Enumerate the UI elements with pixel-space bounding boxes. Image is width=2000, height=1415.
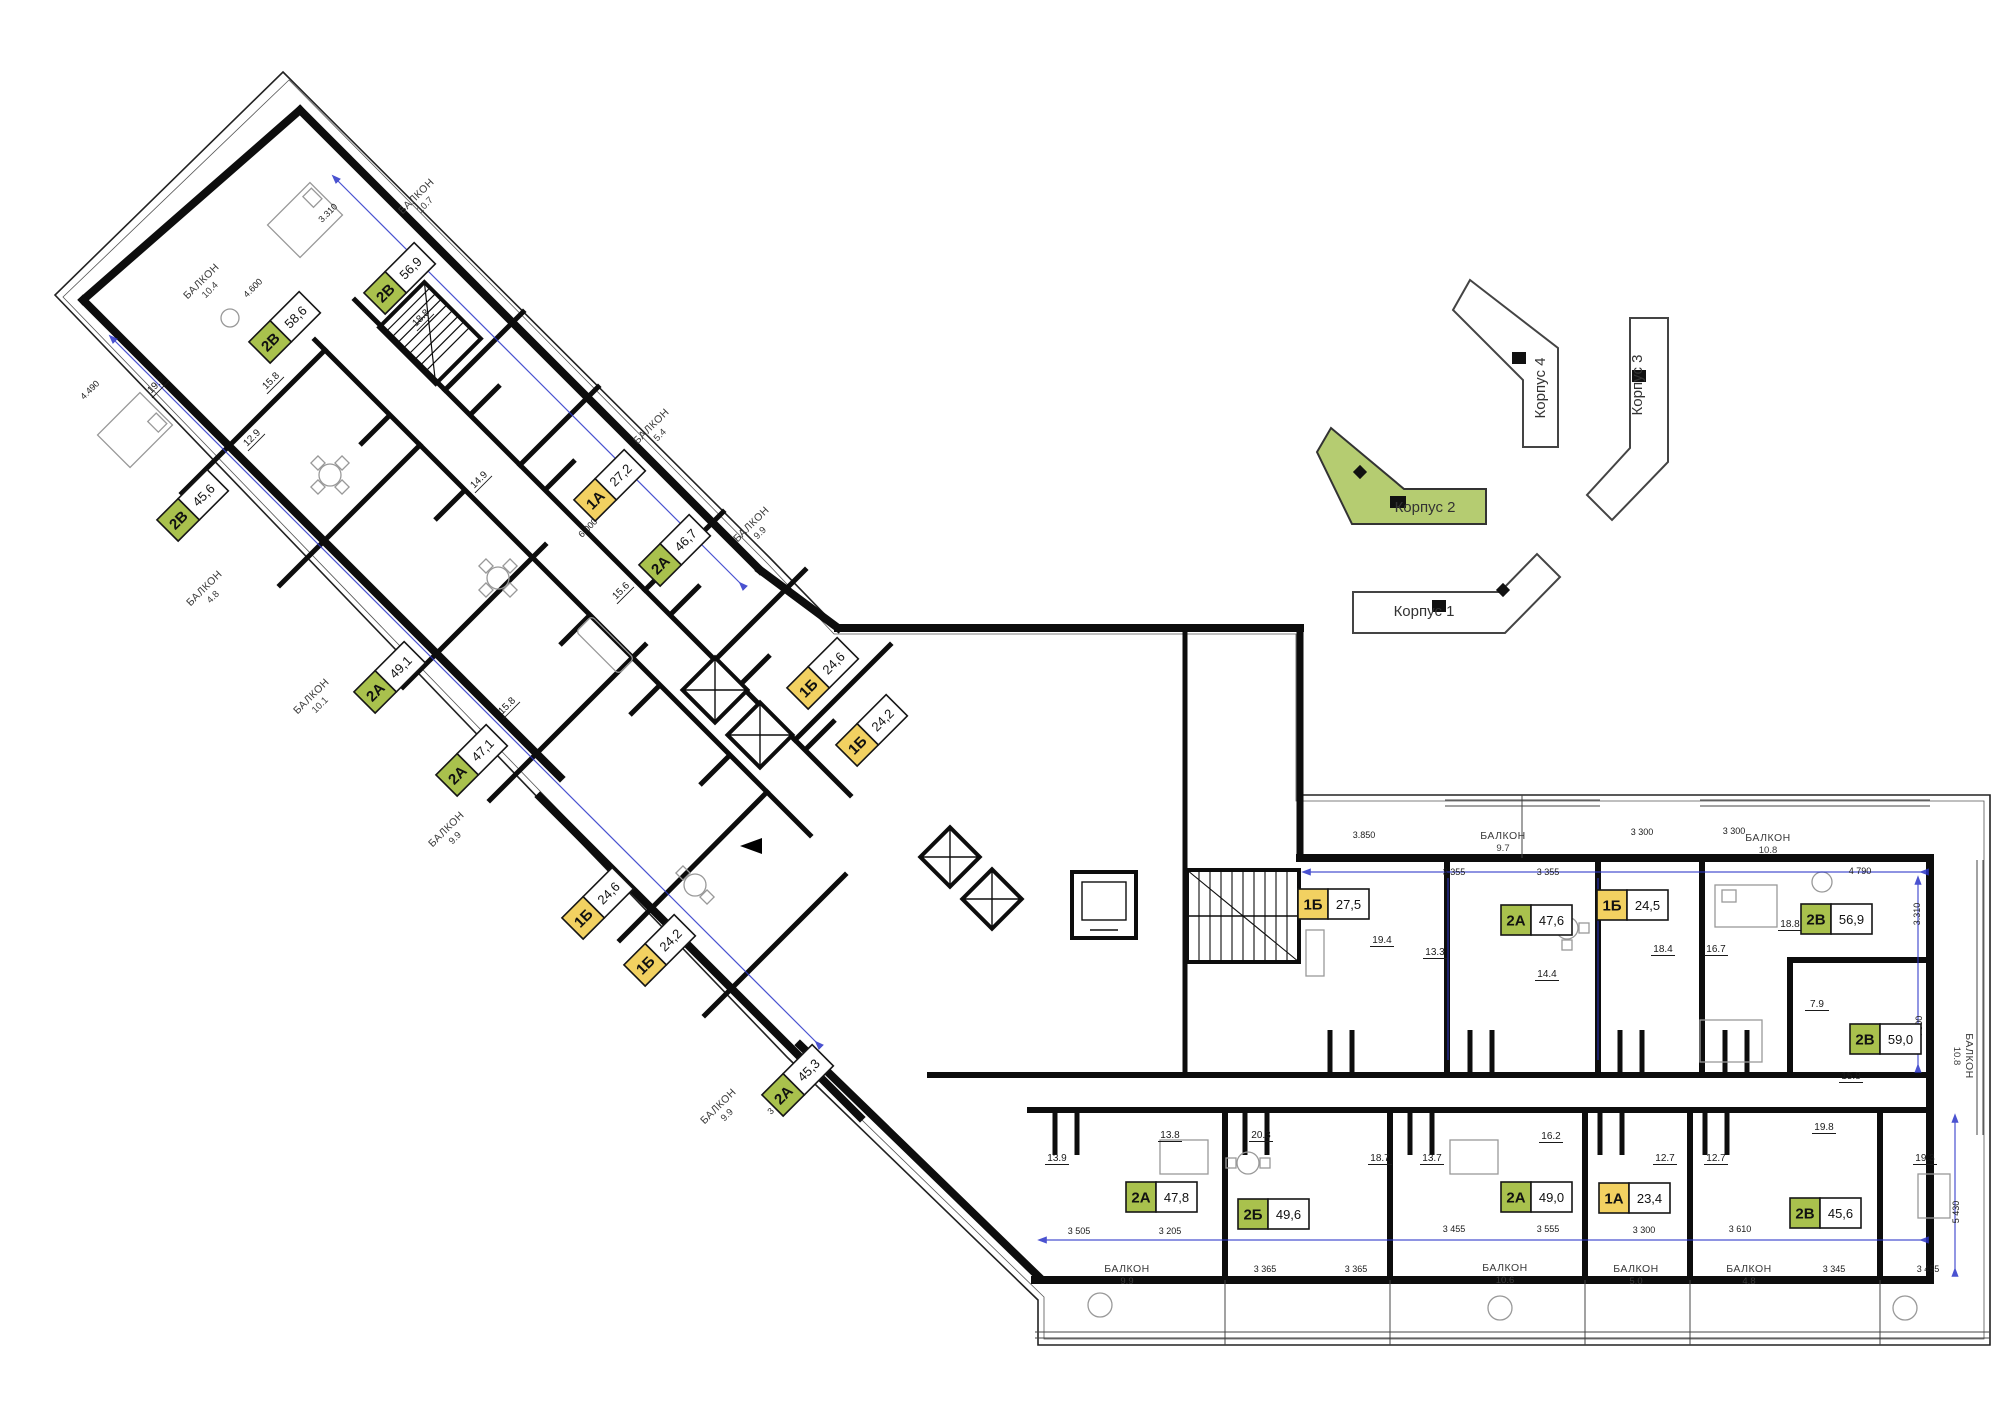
dimension-label: 3 365 <box>1345 1264 1368 1274</box>
apartment-badge-2б-49-6[interactable]: 2Б49,6 <box>1238 1199 1309 1229</box>
dimension-label: 3 300 <box>1633 1225 1656 1235</box>
svg-text:47,8: 47,8 <box>1164 1190 1189 1205</box>
svg-text:23,4: 23,4 <box>1637 1191 1662 1206</box>
svg-text:Корпус 3: Корпус 3 <box>1629 355 1646 416</box>
svg-text:18.4: 18.4 <box>1653 944 1673 955</box>
dimension-label: 3 300 <box>1631 827 1654 837</box>
svg-text:12.7: 12.7 <box>1655 1153 1675 1164</box>
dimension-label: 3 455 <box>1917 1264 1940 1274</box>
svg-text:18.7: 18.7 <box>1370 1153 1390 1164</box>
room-area-label: 19.4 <box>1370 935 1394 947</box>
apartment-badge-2а-46-7[interactable]: 2А46,7 <box>639 515 710 586</box>
apartment-badge-2а-47-8[interactable]: 2А47,8 <box>1126 1182 1197 1212</box>
svg-text:9.7: 9.7 <box>1496 843 1509 854</box>
elevator-shafts <box>682 657 1136 938</box>
svg-text:БАЛКОН: БАЛКОН <box>1104 1263 1150 1275</box>
dimension-label: 4.490 <box>78 378 101 401</box>
svg-text:27,5: 27,5 <box>1336 897 1361 912</box>
svg-text:2Б: 2Б <box>1243 1207 1262 1224</box>
svg-text:45,6: 45,6 <box>1828 1206 1853 1221</box>
balcony-label: БАЛКОН10.8 <box>1745 832 1791 856</box>
entrance-arrow-icon <box>740 838 762 854</box>
apartment-badge-2в-59-0[interactable]: 2В59,0 <box>1850 1024 1921 1054</box>
room-area-label: 13.8 <box>1158 1130 1182 1142</box>
svg-text:14.9: 14.9 <box>468 469 490 491</box>
apartment-badge-2в-45-6[interactable]: 2В45,6 <box>1790 1198 1861 1228</box>
apartment-badge-2в-58-6[interactable]: 2В58,6 <box>249 292 320 363</box>
svg-text:10.6: 10.6 <box>1496 1275 1515 1286</box>
svg-text:2В: 2В <box>1795 1206 1814 1223</box>
svg-text:3 365: 3 365 <box>1345 1264 1368 1274</box>
svg-text:13.8: 13.8 <box>1160 1130 1180 1141</box>
svg-text:19.4: 19.4 <box>1372 935 1392 946</box>
room-area-label: 13.3 <box>1423 947 1447 959</box>
dimension-label: 3 505 <box>1068 1226 1091 1236</box>
svg-text:3 505: 3 505 <box>1068 1226 1091 1236</box>
dimension-label: 3 345 <box>1823 1264 1846 1274</box>
balcony-label: БАЛКОН10.8 <box>1951 1033 1975 1079</box>
dimension-label: 3.850 <box>1353 830 1376 840</box>
room-area-label: 12.7 <box>1653 1153 1677 1165</box>
svg-text:15.6: 15.6 <box>610 580 632 602</box>
svg-text:13.7: 13.7 <box>1422 1153 1442 1164</box>
dimension-label: 3 205 <box>1159 1226 1182 1236</box>
building-outline <box>55 72 1990 1345</box>
svg-text:5 430: 5 430 <box>1951 1201 1961 1224</box>
svg-text:Корпус 4: Корпус 4 <box>1532 358 1549 419</box>
room-area-label: 15.8 <box>1839 1071 1863 1083</box>
dimension-label: 3 355 <box>1537 867 1560 877</box>
room-area-label: 15.6 <box>609 579 634 604</box>
svg-text:3.850: 3.850 <box>1353 830 1376 840</box>
svg-text:47,6: 47,6 <box>1539 913 1564 928</box>
dimension-label: 3 555 <box>1537 1224 1560 1234</box>
site-plan <box>1317 280 1668 633</box>
site-label-корпус-2: Корпус 2 <box>1395 499 1456 516</box>
svg-text:1Б: 1Б <box>1303 897 1322 914</box>
svg-text:24,5: 24,5 <box>1635 898 1660 913</box>
svg-text:49,0: 49,0 <box>1539 1190 1564 1205</box>
svg-text:Корпус 1: Корпус 1 <box>1394 603 1455 620</box>
dimension-label: 4.600 <box>241 276 264 299</box>
svg-text:4 790: 4 790 <box>1849 866 1872 876</box>
dimension-label: 3.310 <box>1912 903 1922 926</box>
svg-text:БАЛКОН: БАЛКОН <box>184 568 225 609</box>
svg-text:4.490: 4.490 <box>78 378 101 401</box>
svg-text:2В: 2В <box>1855 1032 1874 1049</box>
svg-text:19.3: 19.3 <box>1915 1153 1935 1164</box>
room-area-label: 20.3 <box>1249 1130 1273 1142</box>
site-label-корпус-3: Корпус 3 <box>1629 355 1646 416</box>
balcony-label: БАЛКОН9.9 <box>698 1086 747 1135</box>
balcony-label: БАЛКОН10.4 <box>181 261 230 310</box>
svg-text:7.9: 7.9 <box>1810 999 1824 1010</box>
room-area-label: 12.7 <box>1704 1153 1728 1165</box>
svg-text:Корпус 2: Корпус 2 <box>1395 499 1456 516</box>
room-area-label: 19.8 <box>1812 1122 1836 1134</box>
room-area-label: 14.9 <box>467 468 492 493</box>
svg-text:БАЛКОН: БАЛКОН <box>1963 1033 1975 1079</box>
svg-text:15.8: 15.8 <box>1841 1071 1861 1082</box>
site-building-korpus-3[interactable] <box>1587 318 1668 520</box>
svg-text:3 355: 3 355 <box>1443 867 1466 877</box>
apartment-badge-1б-24-2[interactable]: 1Б24,2 <box>836 695 907 766</box>
balcony-label: БАЛКОН9.7 <box>1480 830 1526 854</box>
balcony-label: БАЛКОН9.9 <box>426 809 475 858</box>
staircase-right-wing <box>1187 870 1299 962</box>
svg-text:БАЛКОН: БАЛКОН <box>1613 1263 1659 1275</box>
apartment-badge-1а-23-4[interactable]: 1А23,4 <box>1599 1183 1670 1213</box>
svg-text:16.7: 16.7 <box>1706 944 1726 955</box>
svg-text:19.8: 19.8 <box>1814 1122 1834 1133</box>
svg-text:13.3: 13.3 <box>1425 947 1445 958</box>
svg-text:3 300: 3 300 <box>1723 826 1746 836</box>
svg-text:2А: 2А <box>1506 913 1525 930</box>
svg-text:59,0: 59,0 <box>1888 1032 1913 1047</box>
svg-text:БАЛКОН: БАЛКОН <box>1482 1262 1528 1274</box>
dimension-label: 4 790 <box>1849 866 1872 876</box>
apartment-badge-1б-24-5[interactable]: 1Б24,5 <box>1597 890 1668 920</box>
room-area-label: 19.3 <box>1913 1153 1937 1165</box>
svg-text:4.8: 4.8 <box>1742 1276 1755 1287</box>
svg-text:14.4: 14.4 <box>1537 969 1557 980</box>
room-area-label: 18.8 <box>1778 919 1802 931</box>
dimension-label: 3 455 <box>1443 1224 1466 1234</box>
svg-text:1А: 1А <box>1604 1191 1623 1208</box>
balcony-label: БАЛКОН4.8 <box>184 568 233 617</box>
svg-text:3 300: 3 300 <box>1633 1225 1656 1235</box>
room-area-label: 7.9 <box>1805 999 1829 1011</box>
apartment-badge-1б-24-6[interactable]: 1Б24,6 <box>562 868 633 939</box>
svg-text:БАЛКОН: БАЛКОН <box>698 1086 739 1127</box>
site-label-корпус-4: Корпус 4 <box>1532 358 1549 419</box>
svg-text:2В: 2В <box>1806 912 1825 929</box>
apartment-badge-1б-27-5[interactable]: 1Б27,5 <box>1298 889 1369 919</box>
svg-text:18.8: 18.8 <box>1780 919 1800 930</box>
svg-text:15.8: 15.8 <box>260 370 282 392</box>
room-area-label: 16.2 <box>1539 1131 1563 1143</box>
svg-text:БАЛКОН: БАЛКОН <box>426 809 467 850</box>
site-label-корпус-1: Корпус 1 <box>1394 603 1455 620</box>
apartment-badge-2а-47-6[interactable]: 2А47,6 <box>1501 905 1572 935</box>
room-area-label: 15.8 <box>259 369 284 394</box>
room-area-label: 13.7 <box>1420 1153 1444 1165</box>
svg-text:10.8: 10.8 <box>1951 1047 1962 1066</box>
svg-text:БАЛКОН: БАЛКОН <box>1726 1263 1772 1275</box>
svg-text:3 455: 3 455 <box>1917 1264 1940 1274</box>
svg-text:12.7: 12.7 <box>1706 1153 1726 1164</box>
svg-text:3 355: 3 355 <box>1537 867 1560 877</box>
svg-text:56,9: 56,9 <box>1839 912 1864 927</box>
svg-text:10.8: 10.8 <box>1759 845 1778 856</box>
room-area-label: 18.4 <box>1651 944 1675 956</box>
apartment-badge-2а-47-1[interactable]: 2А47,1 <box>436 725 507 796</box>
svg-text:16.2: 16.2 <box>1541 1131 1561 1142</box>
svg-text:15.8: 15.8 <box>496 695 518 717</box>
site-building-korpus-1[interactable] <box>1353 554 1560 633</box>
dimension-label: 5 430 <box>1951 1201 1961 1224</box>
svg-text:3 300: 3 300 <box>1631 827 1654 837</box>
apartment-badge-2в-56-9[interactable]: 2В56,9 <box>364 243 435 314</box>
svg-text:3 365: 3 365 <box>1254 1264 1277 1274</box>
room-area-label: 14.4 <box>1535 969 1559 981</box>
room-area-label: 18.7 <box>1368 1153 1392 1165</box>
furniture <box>98 183 1950 1320</box>
apartment-badge-1а-27-2[interactable]: 1А27,2 <box>574 450 645 521</box>
apartment-badge-2в-56-9[interactable]: 2В56,9 <box>1801 904 1872 934</box>
svg-text:49,6: 49,6 <box>1276 1207 1301 1222</box>
svg-text:20.3: 20.3 <box>1251 1130 1271 1141</box>
svg-text:БАЛКОН: БАЛКОН <box>1745 832 1791 844</box>
svg-text:БАЛКОН: БАЛКОН <box>1480 830 1526 842</box>
apartment-badge-1б-24-6[interactable]: 1Б24,6 <box>787 638 858 709</box>
dimension-label: 3 300 <box>1723 826 1746 836</box>
svg-text:3 610: 3 610 <box>1729 1224 1752 1234</box>
svg-text:2А: 2А <box>1131 1190 1150 1207</box>
svg-text:5.0: 5.0 <box>1629 1276 1642 1287</box>
floorplan-page: 19.215.818.812.914.915.615.819.413.314.4… <box>0 0 2000 1415</box>
interior-stubs <box>360 385 1747 1155</box>
svg-text:1Б: 1Б <box>1602 898 1621 915</box>
balcony-label: БАЛКОН10.1 <box>291 676 340 725</box>
room-area-label: 13.9 <box>1045 1153 1069 1165</box>
svg-text:3 555: 3 555 <box>1537 1224 1560 1234</box>
floor-plan-canvas: 19.215.818.812.914.915.615.819.413.314.4… <box>0 0 2000 1415</box>
apartment-badge-2а-49-0[interactable]: 2А49,0 <box>1501 1182 1572 1212</box>
svg-text:2А: 2А <box>1506 1190 1525 1207</box>
dimension-label: 3 610 <box>1729 1224 1752 1234</box>
svg-text:9.9: 9.9 <box>1120 1276 1133 1287</box>
svg-text:13.9: 13.9 <box>1047 1153 1067 1164</box>
svg-text:3 345: 3 345 <box>1823 1264 1846 1274</box>
svg-text:3 455: 3 455 <box>1443 1224 1466 1234</box>
room-area-label: 16.7 <box>1704 944 1728 956</box>
dimension-label: 3 365 <box>1254 1264 1277 1274</box>
svg-text:4.600: 4.600 <box>241 276 264 299</box>
svg-text:3 205: 3 205 <box>1159 1226 1182 1236</box>
dimension-label: 3 355 <box>1443 867 1466 877</box>
svg-text:3.310: 3.310 <box>1912 903 1922 926</box>
